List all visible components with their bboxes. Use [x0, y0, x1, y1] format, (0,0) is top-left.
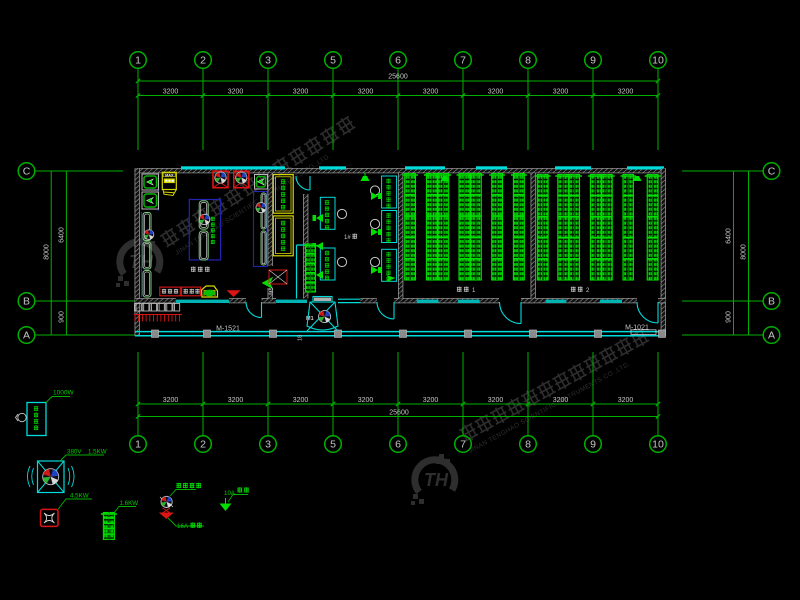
svg-text:9: 9 [590, 439, 596, 451]
svg-text:10: 10 [652, 55, 664, 67]
svg-text:B: B [23, 296, 30, 308]
svg-text:3200: 3200 [293, 89, 309, 96]
svg-text:4.5KW: 4.5KW [70, 493, 89, 500]
svg-text:1.6KW: 1.6KW [120, 500, 139, 507]
svg-text:8000: 8000 [44, 244, 51, 260]
svg-text:3200: 3200 [228, 89, 244, 96]
svg-text:M-1521: M-1521 [216, 326, 240, 333]
svg-text:5: 5 [330, 439, 336, 451]
svg-text:10: 10 [652, 439, 664, 451]
svg-text:900: 900 [726, 311, 733, 323]
svg-text:2: 2 [200, 55, 206, 67]
svg-text:3200: 3200 [618, 89, 634, 96]
svg-text:6400: 6400 [726, 228, 733, 244]
svg-text:3200: 3200 [553, 89, 569, 96]
svg-text:3200: 3200 [423, 89, 439, 96]
svg-text:7: 7 [460, 439, 466, 451]
svg-text:6400: 6400 [59, 227, 66, 243]
svg-text:2: 2 [200, 439, 206, 451]
svg-text:9: 9 [590, 55, 596, 67]
svg-text:B: B [768, 296, 775, 308]
svg-text:1#: 1# [344, 235, 351, 241]
svg-text:1000W: 1000W [53, 390, 74, 397]
svg-text:3200: 3200 [293, 397, 309, 404]
svg-text:5: 5 [330, 55, 336, 67]
svg-text:3200: 3200 [618, 397, 634, 404]
svg-text:3200: 3200 [358, 89, 374, 96]
svg-text:25600: 25600 [389, 410, 409, 417]
svg-text:3200: 3200 [358, 397, 374, 404]
svg-text:1.5KW: 1.5KW [88, 449, 107, 456]
svg-text:M5: M5 [269, 287, 275, 295]
svg-text:10A: 10A [224, 490, 236, 497]
svg-text:25600: 25600 [388, 74, 408, 81]
svg-text:8000: 8000 [741, 244, 748, 260]
svg-text:3: 3 [265, 439, 271, 451]
svg-text:A: A [768, 330, 775, 342]
svg-text:A: A [23, 330, 30, 342]
svg-text:8: 8 [525, 439, 531, 451]
svg-text:7: 7 [460, 55, 466, 67]
svg-text:3200: 3200 [163, 397, 179, 404]
svg-text:3200: 3200 [423, 397, 439, 404]
svg-text:380V: 380V [67, 449, 82, 456]
svg-text:900: 900 [59, 311, 66, 323]
svg-text:16A: 16A [177, 523, 189, 530]
svg-text:M1: M1 [306, 316, 314, 322]
svg-text:TH: TH [424, 470, 449, 490]
svg-text:C: C [768, 166, 776, 178]
svg-text:3200: 3200 [553, 397, 569, 404]
svg-text:C: C [23, 166, 31, 178]
svg-text:1: 1 [135, 55, 141, 67]
svg-text:3: 3 [265, 55, 271, 67]
svg-text:3200: 3200 [488, 89, 504, 96]
svg-text:6: 6 [395, 439, 401, 451]
svg-text:MAX: MAX [165, 173, 174, 177]
svg-text:18: 18 [298, 335, 304, 341]
svg-text:6: 6 [395, 55, 401, 67]
svg-text:3200: 3200 [163, 89, 179, 96]
svg-text:3200: 3200 [488, 397, 504, 404]
svg-text:3200: 3200 [228, 397, 244, 404]
svg-text:M-1021: M-1021 [625, 325, 649, 332]
svg-text:8: 8 [525, 55, 531, 67]
svg-text:1: 1 [135, 439, 141, 451]
